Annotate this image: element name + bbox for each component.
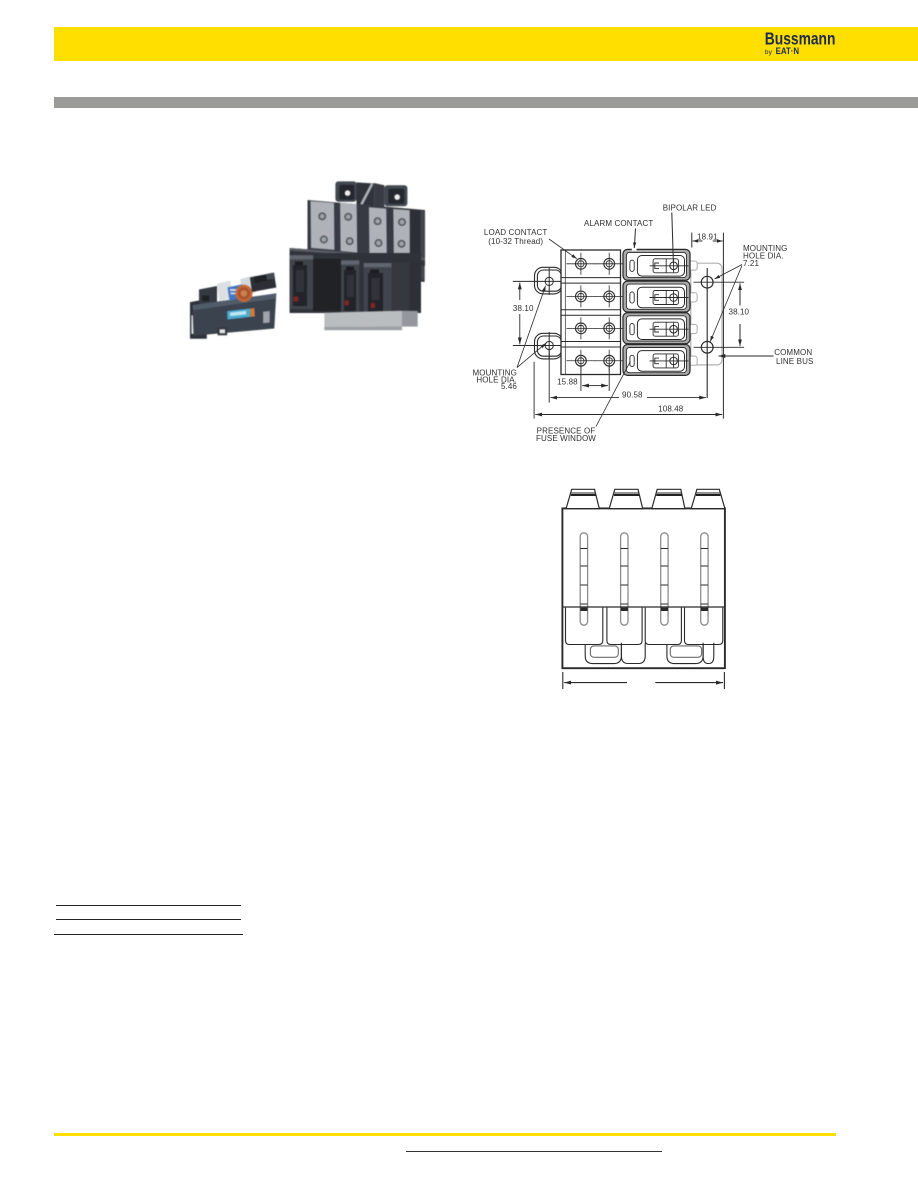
svg-text:18.91: 18.91	[697, 232, 718, 241]
svg-text:90.58: 90.58	[622, 390, 643, 399]
svg-text:FUSE WINDOW: FUSE WINDOW	[536, 434, 596, 443]
svg-text:LINE BUS: LINE BUS	[776, 357, 813, 366]
svg-text:7.21: 7.21	[743, 259, 759, 268]
svg-text:EAT·N: EAT·N	[776, 46, 800, 56]
svg-text:by: by	[765, 49, 773, 56]
svg-text:(10-32 Thread): (10-32 Thread)	[488, 237, 543, 246]
svg-text:LOAD CONTACT: LOAD CONTACT	[484, 228, 548, 237]
svg-text:ALARM CONTACT: ALARM CONTACT	[584, 219, 653, 228]
svg-text:5.46: 5.46	[501, 382, 517, 391]
svg-text:38.10: 38.10	[513, 304, 534, 313]
svg-text:108.48: 108.48	[658, 404, 684, 413]
svg-text:BIPOLAR LED: BIPOLAR LED	[663, 204, 717, 213]
svg-text:15.88: 15.88	[557, 377, 578, 386]
svg-text:COMMON: COMMON	[774, 348, 812, 357]
svg-text:38.10: 38.10	[729, 308, 750, 317]
